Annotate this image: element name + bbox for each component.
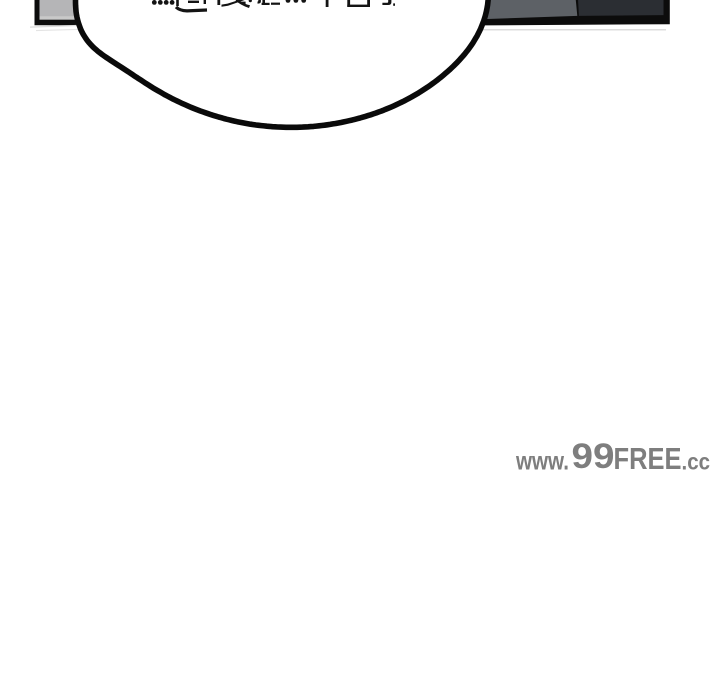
svg-text:99: 99 <box>572 437 615 476</box>
svg-text:FREE: FREE <box>614 441 682 476</box>
svg-text:.cc: .cc <box>682 449 711 475</box>
svg-text:www.: www. <box>515 446 569 476</box>
